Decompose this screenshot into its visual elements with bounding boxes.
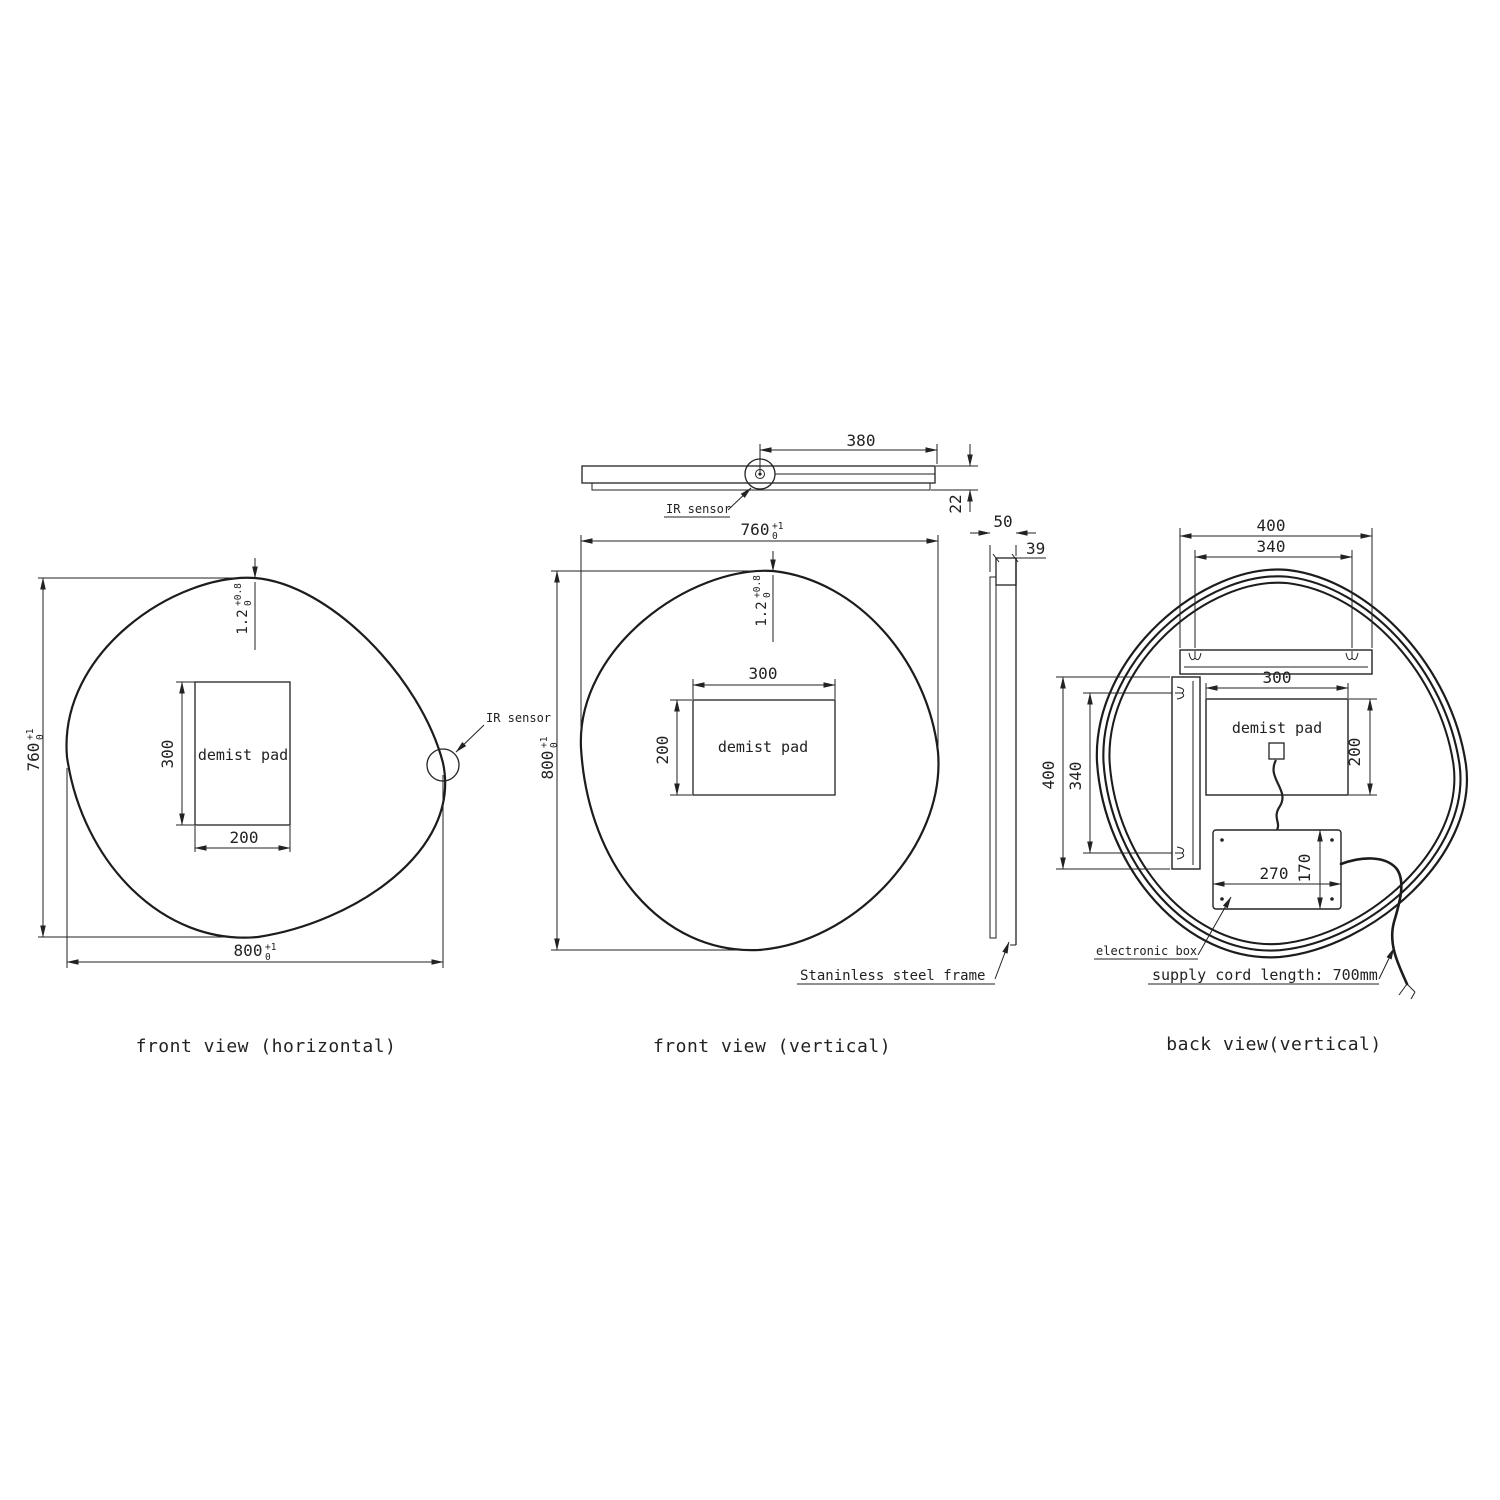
dim-edge-1-2: 1.2 +0.8 0	[233, 583, 254, 635]
back-view: 400 340 400 340 demist pad 300	[1039, 516, 1467, 999]
side-profile: 50 39 Staninless steel frame	[797, 512, 1046, 984]
dim-edge-thickness-22: 22	[946, 494, 965, 513]
dim-top-bracket-340: 340	[1257, 537, 1286, 556]
svg-text:0: 0	[762, 592, 773, 598]
svg-text:800: 800	[538, 751, 557, 780]
dim-pad-200-h: 200	[230, 828, 259, 847]
demist-pad-label-vertical: demist pad	[718, 738, 808, 756]
technical-drawing-page: 380 22 IR sensor 760 +1 0 800 +1 0	[0, 0, 1500, 1500]
dim-width-800: 800 +1 0	[234, 941, 277, 963]
frame-leader	[995, 942, 1009, 979]
dim-depth-39: 39	[1026, 539, 1045, 558]
ir-sensor-label-top: IR sensor	[666, 502, 731, 516]
svg-text:1.2: 1.2	[754, 601, 770, 626]
dim-sensor-offset: 380	[847, 431, 876, 450]
dim-width-760: 760 +1 0	[741, 520, 784, 542]
glass-profile	[990, 577, 996, 938]
ir-sensor-leader-front	[456, 725, 484, 752]
svg-text:760: 760	[24, 743, 43, 772]
svg-text:0: 0	[265, 952, 271, 963]
side-bracket	[1172, 677, 1200, 869]
svg-text:0: 0	[772, 531, 778, 542]
ir-sensor-leader-top	[728, 488, 751, 510]
dim-height-760: 760 +1 0	[24, 728, 46, 771]
mirror-outline-vertical	[581, 571, 939, 950]
top-edge-view: 380 22 IR sensor	[582, 431, 978, 517]
svg-text:0: 0	[35, 734, 46, 740]
dim-pad-200-v: 200	[653, 736, 672, 765]
dim-edge-1-2-v: 1.2 +0.8 0	[752, 575, 773, 627]
demist-pad-label-horizontal: demist pad	[198, 746, 288, 764]
dim-depth-50: 50	[993, 512, 1012, 531]
dim-pad-300-back: 300	[1263, 668, 1292, 687]
supply-cord-leader	[1379, 948, 1394, 979]
frame-section-box	[996, 558, 1016, 585]
demist-pad-label-back: demist pad	[1232, 719, 1322, 737]
dim-box-170: 170	[1295, 854, 1314, 883]
caption-front-horizontal: front view (horizontal)	[136, 1036, 397, 1057]
dim-box-270: 270	[1260, 864, 1289, 883]
dim-side-bracket-400: 400	[1039, 761, 1058, 790]
svg-text:760: 760	[741, 520, 770, 539]
ir-sensor-label-front: IR sensor	[486, 711, 551, 725]
caption-back-vertical: back view(vertical)	[1166, 1034, 1381, 1055]
front-view-vertical: 760 +1 0 800 +1 0 1.2 +0.8 0 demist pad …	[538, 520, 938, 950]
dim-pad-200-back: 200	[1345, 738, 1364, 767]
front-view-horizontal: 760 +1 0 800 +1 0 1.2 +0.8 0 demist pad …	[24, 558, 551, 968]
svg-text:0: 0	[549, 742, 560, 748]
mirror-technical-drawing: 380 22 IR sensor 760 +1 0 800 +1 0	[0, 0, 1500, 1500]
svg-text:0: 0	[243, 600, 254, 606]
frame-label: Staninless steel frame	[800, 968, 985, 984]
electronic-box-label: electronic box	[1096, 944, 1197, 958]
dim-top-bracket-400: 400	[1257, 516, 1286, 535]
dim-height-800: 800 +1 0	[538, 736, 560, 779]
supply-cord-label: supply cord length: 700mm	[1152, 966, 1378, 984]
supply-cord-end	[1399, 984, 1415, 999]
svg-text:1.2: 1.2	[235, 609, 251, 634]
svg-text:800: 800	[234, 941, 263, 960]
dim-side-bracket-340: 340	[1066, 762, 1085, 791]
caption-front-vertical: front view (vertical)	[653, 1036, 891, 1057]
dim-pad-300-v: 300	[749, 664, 778, 683]
dim-pad-300-h: 300	[158, 740, 177, 769]
